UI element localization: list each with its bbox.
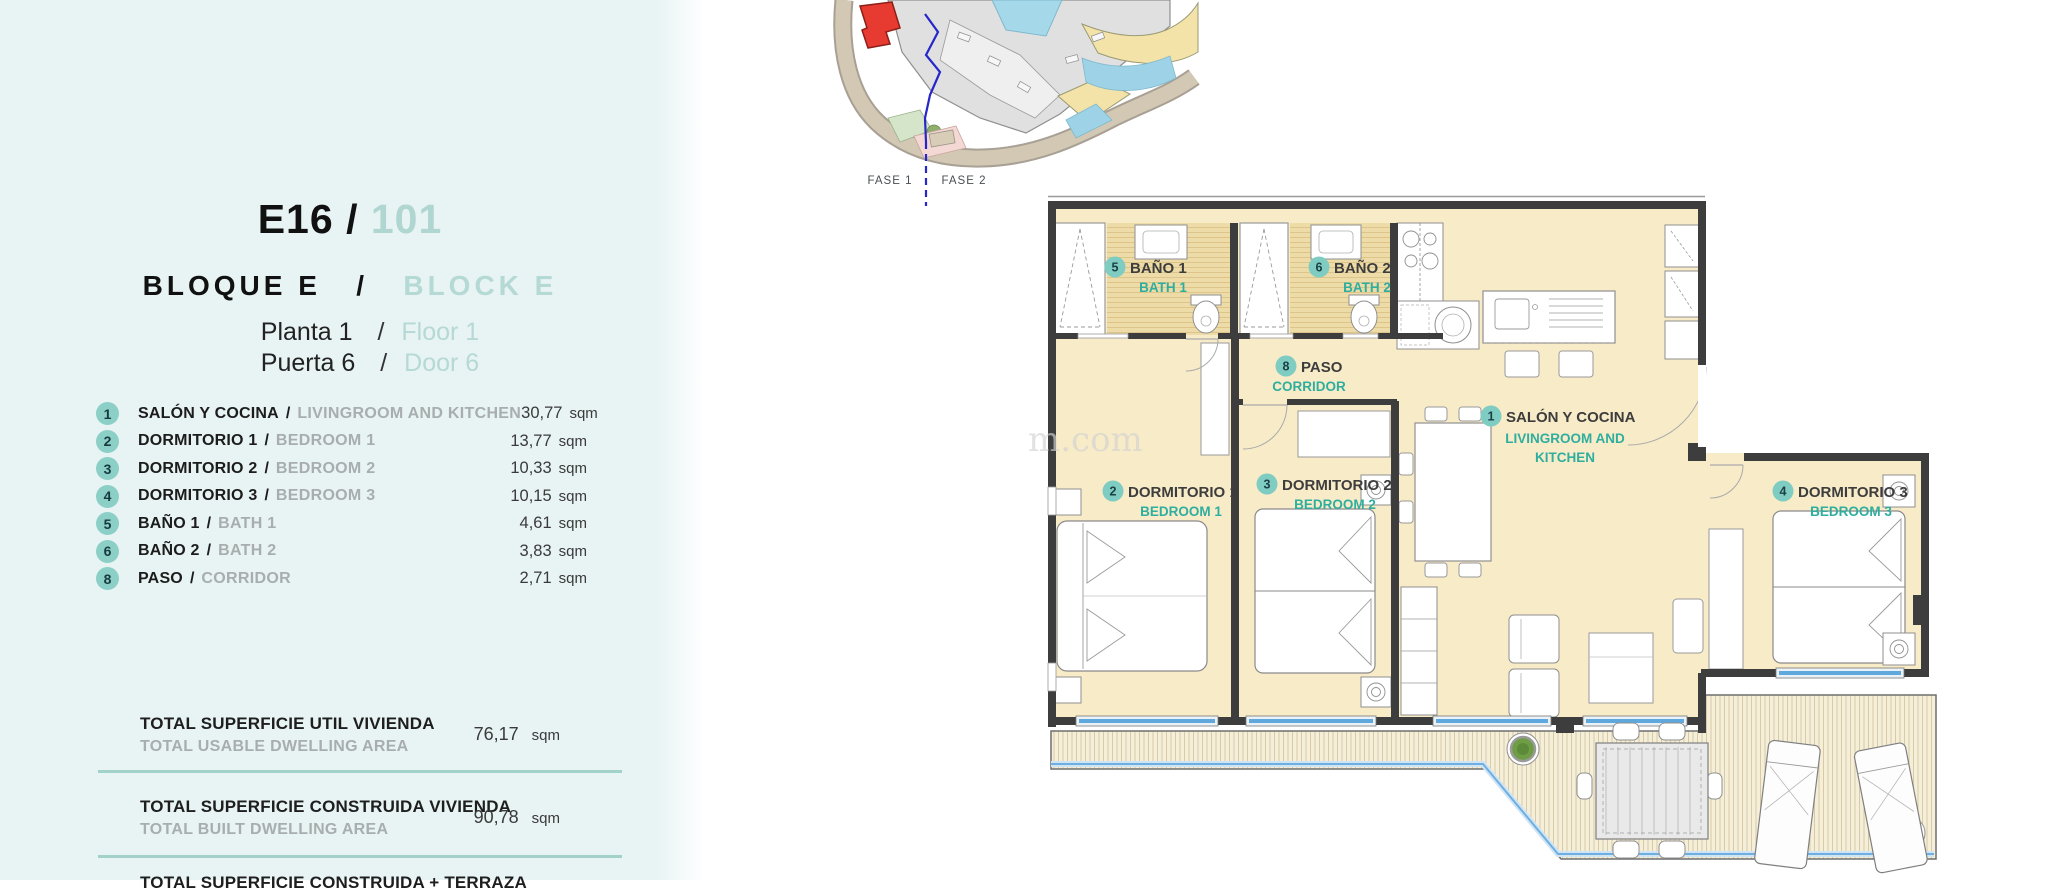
plan-badge-num: 5 [1112,261,1119,275]
door-es: Puerta 6 [261,349,356,377]
side-armchair [1673,599,1703,653]
unit-code: E16 [258,196,334,242]
block-line: BLOQUE E / BLOCK E [50,270,650,302]
toilet-bath2 [1349,295,1379,333]
fase2-label: FASE 2 [942,175,987,187]
shower-bath2 [1240,223,1288,335]
plan-label-living-en1: LIVINGROOM AND [1505,431,1625,446]
room-number-badge: 3 [96,457,119,480]
entrance-door-gap [1698,365,1706,447]
bedroom3-door-gap [1706,453,1744,461]
unit-number: 101 [371,196,442,242]
room-row-living: 1 SALÓN Y COCINA / LIVINGROOM AND KITCHE… [0,400,705,428]
room-row-bath2: 6 BAÑO 2 / BATH 2 3,83sqm [0,538,705,566]
plan-badge-num: 2 [1110,485,1117,499]
bed-bedroom2 [1255,509,1375,673]
room-list: 1 SALÓN Y COCINA / LIVINGROOM AND KITCHE… [0,400,705,593]
site-highlighted-unit [860,2,900,48]
plan-label-bedroom3-es: DORMITORIO 3 [1798,484,1908,501]
fase1-label: FASE 1 [868,175,913,187]
room-row-corridor: 8 PASO / CORRIDOR 2,71sqm [0,565,705,593]
floor-es: Planta 1 [261,318,353,346]
room-number-badge: 5 [96,512,119,535]
room-number-badge: 8 [96,567,119,590]
total-built-plus-terrace-clipped: TOTAL SUPERFICIE CONSTRUIDA + TERRAZA [0,873,705,893]
plan-badge-num: 4 [1780,485,1787,499]
kitchen-tall-cabinets [1665,225,1699,359]
plan-label-bedroom1-es: DORMITORIO 1 [1128,484,1238,501]
plan-label-bedroom2-en: BEDROOM 2 [1294,497,1376,512]
sink-bath1 [1135,225,1187,259]
plan-label-living-en2: KITCHEN [1535,450,1595,465]
plan-label-bath2-es: BAÑO 2 [1334,259,1391,277]
total-usable-area: TOTAL SUPERFICIE UTIL VIVIENDA TOTAL USA… [0,714,705,770]
floor-line: Planta 1 / Floor 1 [70,318,670,347]
divider [98,855,622,858]
plan-label-bedroom1-en: BEDROOM 1 [1140,504,1222,519]
wardrobe-bedroom3 [1709,529,1743,669]
plan-badge-num: 6 [1316,261,1323,275]
washing-machine-icon [1397,301,1479,349]
bed-bedroom1 [1057,521,1207,671]
stove-icon [1397,223,1443,301]
room-row-bath1: 5 BAÑO 1 / BATH 1 4,61sqm [0,510,705,538]
floor-en: Floor 1 [401,318,479,346]
plan-label-corridor-en: CORRIDOR [1272,379,1346,394]
lounge-side-table [1589,633,1653,703]
sink-bath2 [1311,225,1361,259]
room-row-bedroom1: 2 DORMITORIO 1 / BEDROOM 1 13,77sqm [0,428,705,456]
plan-label-living-es: SALÓN Y COCINA [1506,408,1636,426]
plan-label-corridor-es: PASO [1301,359,1343,376]
plan-badge-num: 3 [1264,478,1271,492]
watermark: m.com [1028,420,1228,460]
floor-plan: 5 BAÑO 1 BATH 1 6 BAÑO 2 BATH 2 8 PASO C… [1043,195,1948,880]
room-row-bedroom2: 3 DORMITORIO 2 / BEDROOM 2 10,33sqm [0,455,705,483]
site-location-map: FASE 1 FASE 2 [830,0,1200,208]
room-number-badge: 4 [96,485,119,508]
toilet-bath1 [1191,295,1221,333]
room-number-badge: 2 [96,430,119,453]
bookshelf [1401,587,1437,715]
plan-label-bedroom3-en: BEDROOM 3 [1810,504,1892,519]
plan-label-bedroom2-es: DORMITORIO 2 [1282,477,1392,494]
terrace-planter [1507,733,1539,765]
door-en: Door 6 [404,349,479,377]
room-number-badge: 1 [96,402,119,425]
total-built-area: TOTAL SUPERFICIE CONSTRUIDA VIVIENDA TOT… [0,797,705,853]
headboard-closet-bedroom2 [1298,411,1390,457]
info-panel: E16 / 101 BLOQUE E / BLOCK E Planta 1 / … [0,0,705,880]
shower-bath1 [1055,223,1105,335]
door-line: Puerta 6 / Door 6 [70,349,670,378]
block-es: BLOQUE E [143,270,321,301]
divider [98,770,622,773]
room-number-badge: 6 [96,540,119,563]
plan-badge-num: 8 [1283,360,1290,374]
plan-label-bath1-en: BATH 1 [1139,280,1187,295]
plan-badge-num: 1 [1488,410,1495,424]
unit-title: E16 / 101 [50,196,650,243]
block-en: BLOCK E [403,270,557,301]
outdoor-dining-set [1577,723,1722,858]
plan-label-bath1-es: BAÑO 1 [1130,259,1187,277]
room-row-bedroom3: 4 DORMITORIO 3 / BEDROOM 3 10,15sqm [0,483,705,511]
plan-label-bath2-en: BATH 2 [1343,280,1391,295]
kitchen-counter-sink [1483,291,1615,343]
